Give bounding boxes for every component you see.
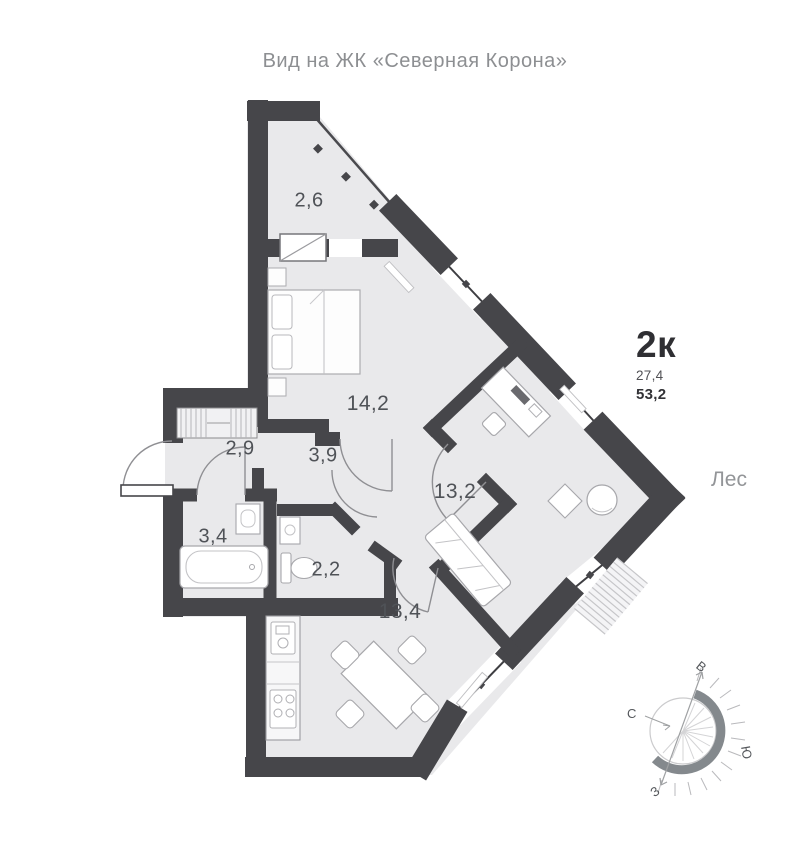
floor-plan-drawing	[0, 0, 800, 865]
wardrobe	[177, 408, 257, 438]
bathroom-sink	[236, 504, 260, 534]
compass-north-pointer	[645, 716, 670, 730]
floor-plan-page: Вид на ЖК «Северная Корона»	[0, 0, 800, 865]
kitchen-counter	[266, 616, 300, 740]
room-label-bathroom: 3,4	[198, 526, 227, 549]
room-label-hallway: 3,9	[308, 445, 337, 468]
environment-label: Лес	[711, 468, 747, 492]
compass-north-label: С	[627, 706, 636, 721]
compass	[645, 668, 745, 796]
compass-south-label: Ю	[738, 745, 755, 761]
room-label-wc: 2,2	[311, 559, 340, 582]
stove	[270, 690, 296, 728]
unit-info: 2к 27,4 53,2	[636, 326, 676, 402]
room-label-living-room: 13,2	[434, 480, 476, 504]
room-label-bedroom: 14,2	[347, 392, 389, 416]
room-label-kitchen-living: 13,4	[379, 600, 421, 624]
kitchen-sink	[271, 622, 295, 654]
bed	[268, 290, 360, 374]
armchair	[587, 485, 617, 515]
wc-sink	[280, 517, 300, 544]
unit-area-living: 27,4	[636, 369, 676, 383]
nightstand	[268, 268, 286, 286]
room-label-corridor: 2,9	[225, 438, 254, 461]
unit-area-total: 53,2	[636, 387, 676, 402]
compass-outer-rays	[658, 668, 745, 796]
unit-type: 2к	[636, 326, 676, 363]
room-label-balcony: 2,6	[294, 190, 323, 213]
nightstand	[268, 378, 286, 396]
bathtub	[180, 546, 268, 588]
